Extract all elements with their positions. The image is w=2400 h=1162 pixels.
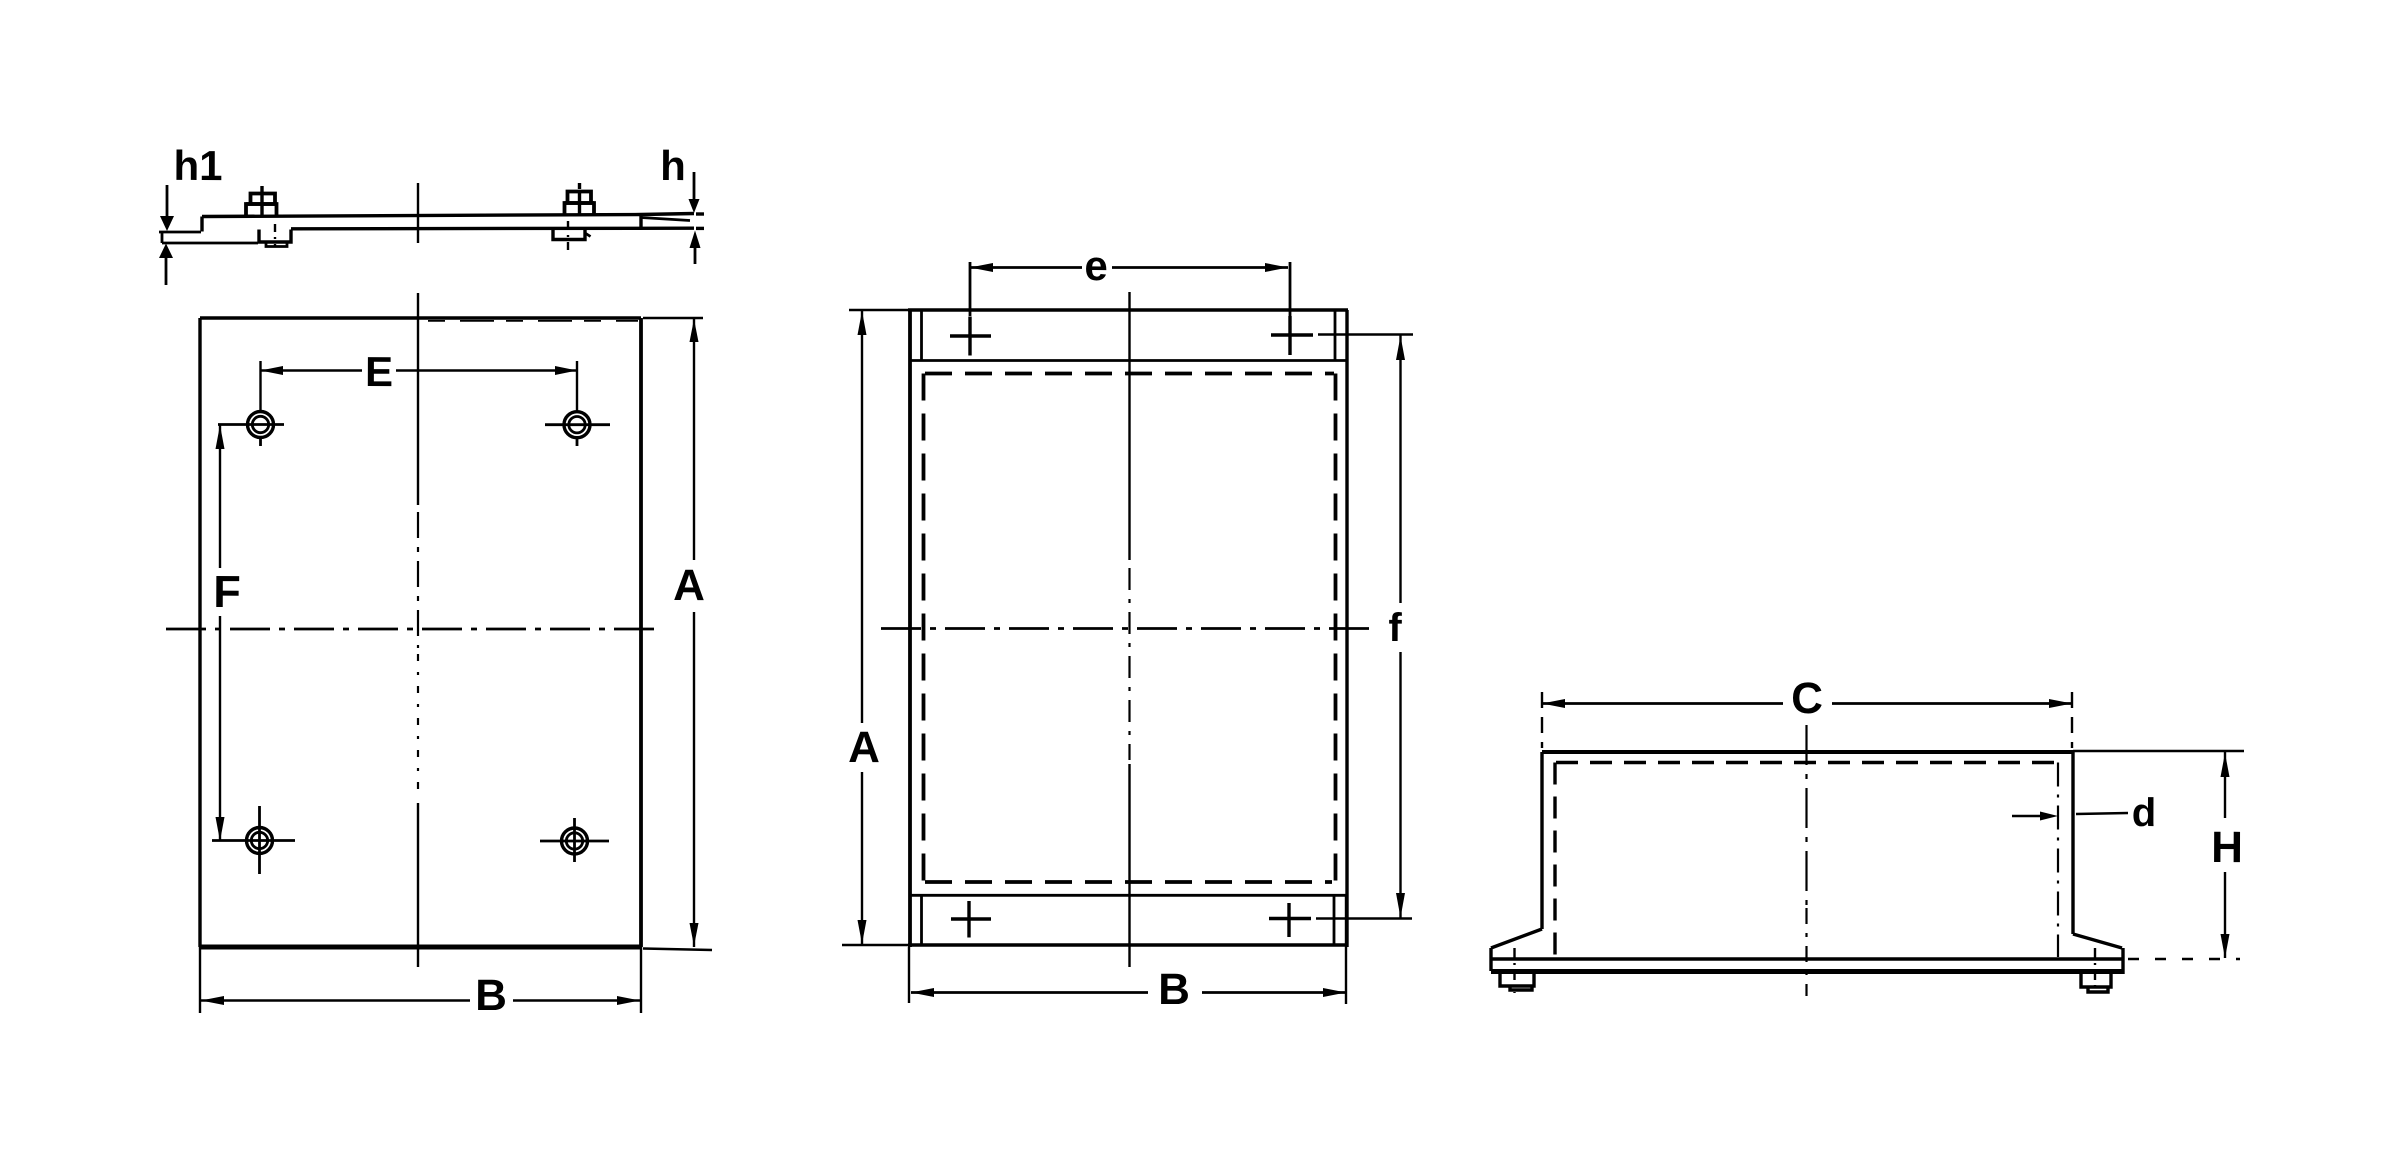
svg-text:A: A xyxy=(848,723,880,772)
svg-text:f: f xyxy=(1388,606,1402,650)
svg-text:h1: h1 xyxy=(173,142,222,189)
svg-text:A: A xyxy=(673,561,705,610)
svg-text:H: H xyxy=(2211,823,2243,872)
svg-text:C: C xyxy=(1791,674,1823,723)
svg-text:E: E xyxy=(365,348,393,395)
svg-text:B: B xyxy=(1158,965,1190,1014)
svg-text:h: h xyxy=(660,142,686,189)
svg-text:F: F xyxy=(213,566,241,617)
svg-text:e: e xyxy=(1084,242,1108,289)
svg-text:d: d xyxy=(2132,791,2157,835)
svg-text:B: B xyxy=(475,971,507,1020)
